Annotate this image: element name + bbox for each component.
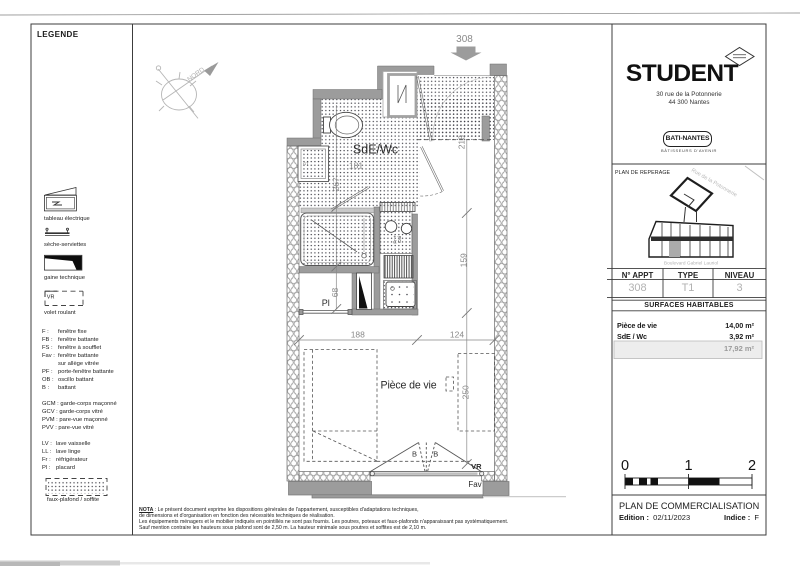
svg-text:181: 181 [349, 161, 363, 171]
svg-text:159: 159 [458, 253, 468, 267]
svg-text:68: 68 [330, 288, 340, 298]
svg-text:188: 188 [351, 330, 365, 340]
svg-text:267: 267 [331, 177, 341, 191]
svg-text:1: 1 [684, 458, 692, 474]
svg-text:250: 250 [461, 385, 471, 399]
svg-text:B: B [433, 450, 438, 459]
svg-text:2: 2 [748, 458, 756, 474]
svg-text:Boulevard Gabriel Lauriol: Boulevard Gabriel Lauriol [664, 261, 718, 267]
svg-text:Fav: Fav [468, 480, 481, 489]
svg-text:B: B [412, 450, 417, 459]
svg-text:308: 308 [456, 34, 473, 45]
svg-text:NORD: NORD [186, 66, 206, 83]
svg-text:Pièce de vie: Pièce de vie [381, 379, 437, 391]
svg-text:VR: VR [471, 462, 482, 471]
svg-text:SdE/Wc: SdE/Wc [353, 143, 398, 157]
svg-text:218: 218 [457, 135, 467, 149]
svg-text:Cui: Cui [397, 236, 402, 243]
svg-text:GT: GT [303, 161, 309, 166]
svg-text:Pl: Pl [322, 298, 330, 308]
svg-text:124: 124 [450, 330, 464, 340]
svg-text:0: 0 [621, 458, 629, 474]
svg-text:VR: VR [47, 295, 55, 301]
